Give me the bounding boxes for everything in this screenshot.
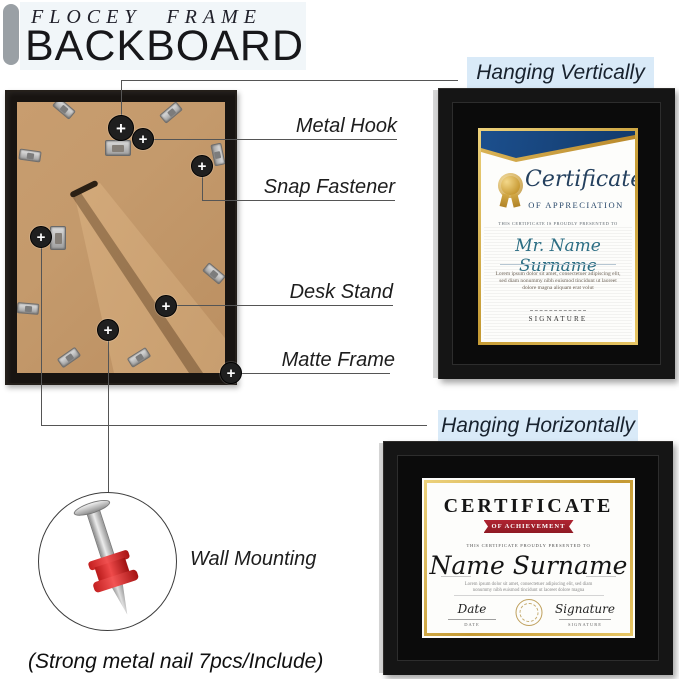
vcert-presented-line: THIS CERTIFICATE IS PROUDLY PRESENTED TO: [481, 221, 635, 226]
label-metal-hook: Metal Hook: [245, 115, 397, 138]
page-title: BACKBOARD: [25, 22, 304, 71]
horizontal-certificate: CERTIFICATE OF ACHIEVEMENT THIS CERTIFIC…: [422, 478, 635, 638]
hcert-presented-line: THIS CERTIFICATE PROUDLY PRESENTED TO: [427, 543, 630, 548]
plus-marker-icon: +: [191, 155, 213, 177]
snap-fastener-icon: [17, 302, 39, 315]
date-line: [448, 619, 496, 620]
vcert-name: Mr. Name Surname: [481, 236, 635, 276]
snap-fastener-icon: [18, 149, 41, 163]
vertical-frame: Certificate OF APPRECIATION THIS CERTIFI…: [438, 88, 675, 379]
callout-line: [108, 330, 109, 493]
banner-navy-icon: [481, 131, 635, 165]
snap-fastener-icon: [52, 102, 76, 120]
signature-line: [530, 310, 586, 311]
product-infographic: FLOCEY FRAME BACKBOARD + + +: [0, 0, 679, 679]
hcert-date-label: Date: [441, 602, 503, 616]
vcert-body-text: Lorem ipsum dolor sit amet, consectetuer…: [494, 271, 622, 292]
snap-fastener-icon: [159, 102, 183, 124]
vcert-title: Certificate: [525, 167, 633, 192]
callout-line: [41, 425, 427, 426]
label-hanging-vertically: Hanging Vertically: [467, 57, 654, 88]
award-seal-icon: [515, 599, 542, 626]
hcert-signature-label: Signature: [550, 602, 620, 616]
vertical-certificate: Certificate OF APPRECIATION THIS CERTIFI…: [478, 128, 638, 345]
hcert-body-text: Lorem ipsum dolor sit amet, consectetuer…: [457, 582, 600, 594]
medal-ribbon-icon: [500, 193, 510, 207]
vcert-signature-caps: SIGNATURE: [481, 315, 635, 323]
horizontal-frame: CERTIFICATE OF ACHIEVEMENT THIS CERTIFIC…: [383, 441, 673, 675]
metal-hook-icon: [105, 140, 131, 156]
plus-marker-icon: +: [30, 226, 52, 248]
signature-block: Signature SIGNATURE: [550, 602, 620, 627]
label-desk-stand: Desk Stand: [241, 281, 393, 304]
snap-fastener-icon: [57, 347, 81, 369]
ornament-line: [586, 576, 616, 577]
label-matte-frame: Matte Frame: [243, 349, 395, 372]
plus-marker-icon: +: [97, 319, 119, 341]
included-note: (Strong metal nail 7pcs/Include): [28, 650, 323, 674]
label-snap-fastener: Snap Fastener: [243, 176, 395, 199]
plus-marker-icon: +: [220, 362, 242, 384]
plus-marker-icon: +: [132, 128, 154, 150]
divider-line: [454, 595, 604, 596]
callout-line: [231, 373, 390, 374]
callout-line: [41, 237, 42, 426]
label-wall-mounting: Wall Mounting: [190, 548, 316, 571]
hcert-signature-caps: SIGNATURE: [550, 622, 620, 627]
name-underline: [500, 264, 616, 265]
callout-line: [121, 80, 458, 81]
hcert-date-caps: DATE: [441, 622, 503, 627]
vcert-subtitle: OF APPRECIATION: [517, 200, 635, 210]
metal-hook-icon: [50, 226, 66, 250]
callout-line: [202, 200, 395, 201]
date-block: Date DATE: [441, 602, 503, 627]
header-accent-bar: [3, 4, 19, 65]
label-hanging-horizontally: Hanging Horizontally: [438, 410, 638, 441]
achievement-ribbon: OF ACHIEVEMENT: [484, 520, 574, 533]
hcert-title: CERTIFICATE: [427, 495, 630, 518]
plus-marker-icon: +: [108, 115, 134, 141]
ornament-line: [441, 576, 471, 577]
snap-fastener-icon: [202, 262, 225, 285]
callout-line: [143, 139, 397, 140]
callout-line: [166, 305, 393, 306]
plus-marker-icon: +: [155, 295, 177, 317]
signature-line: [559, 619, 611, 620]
